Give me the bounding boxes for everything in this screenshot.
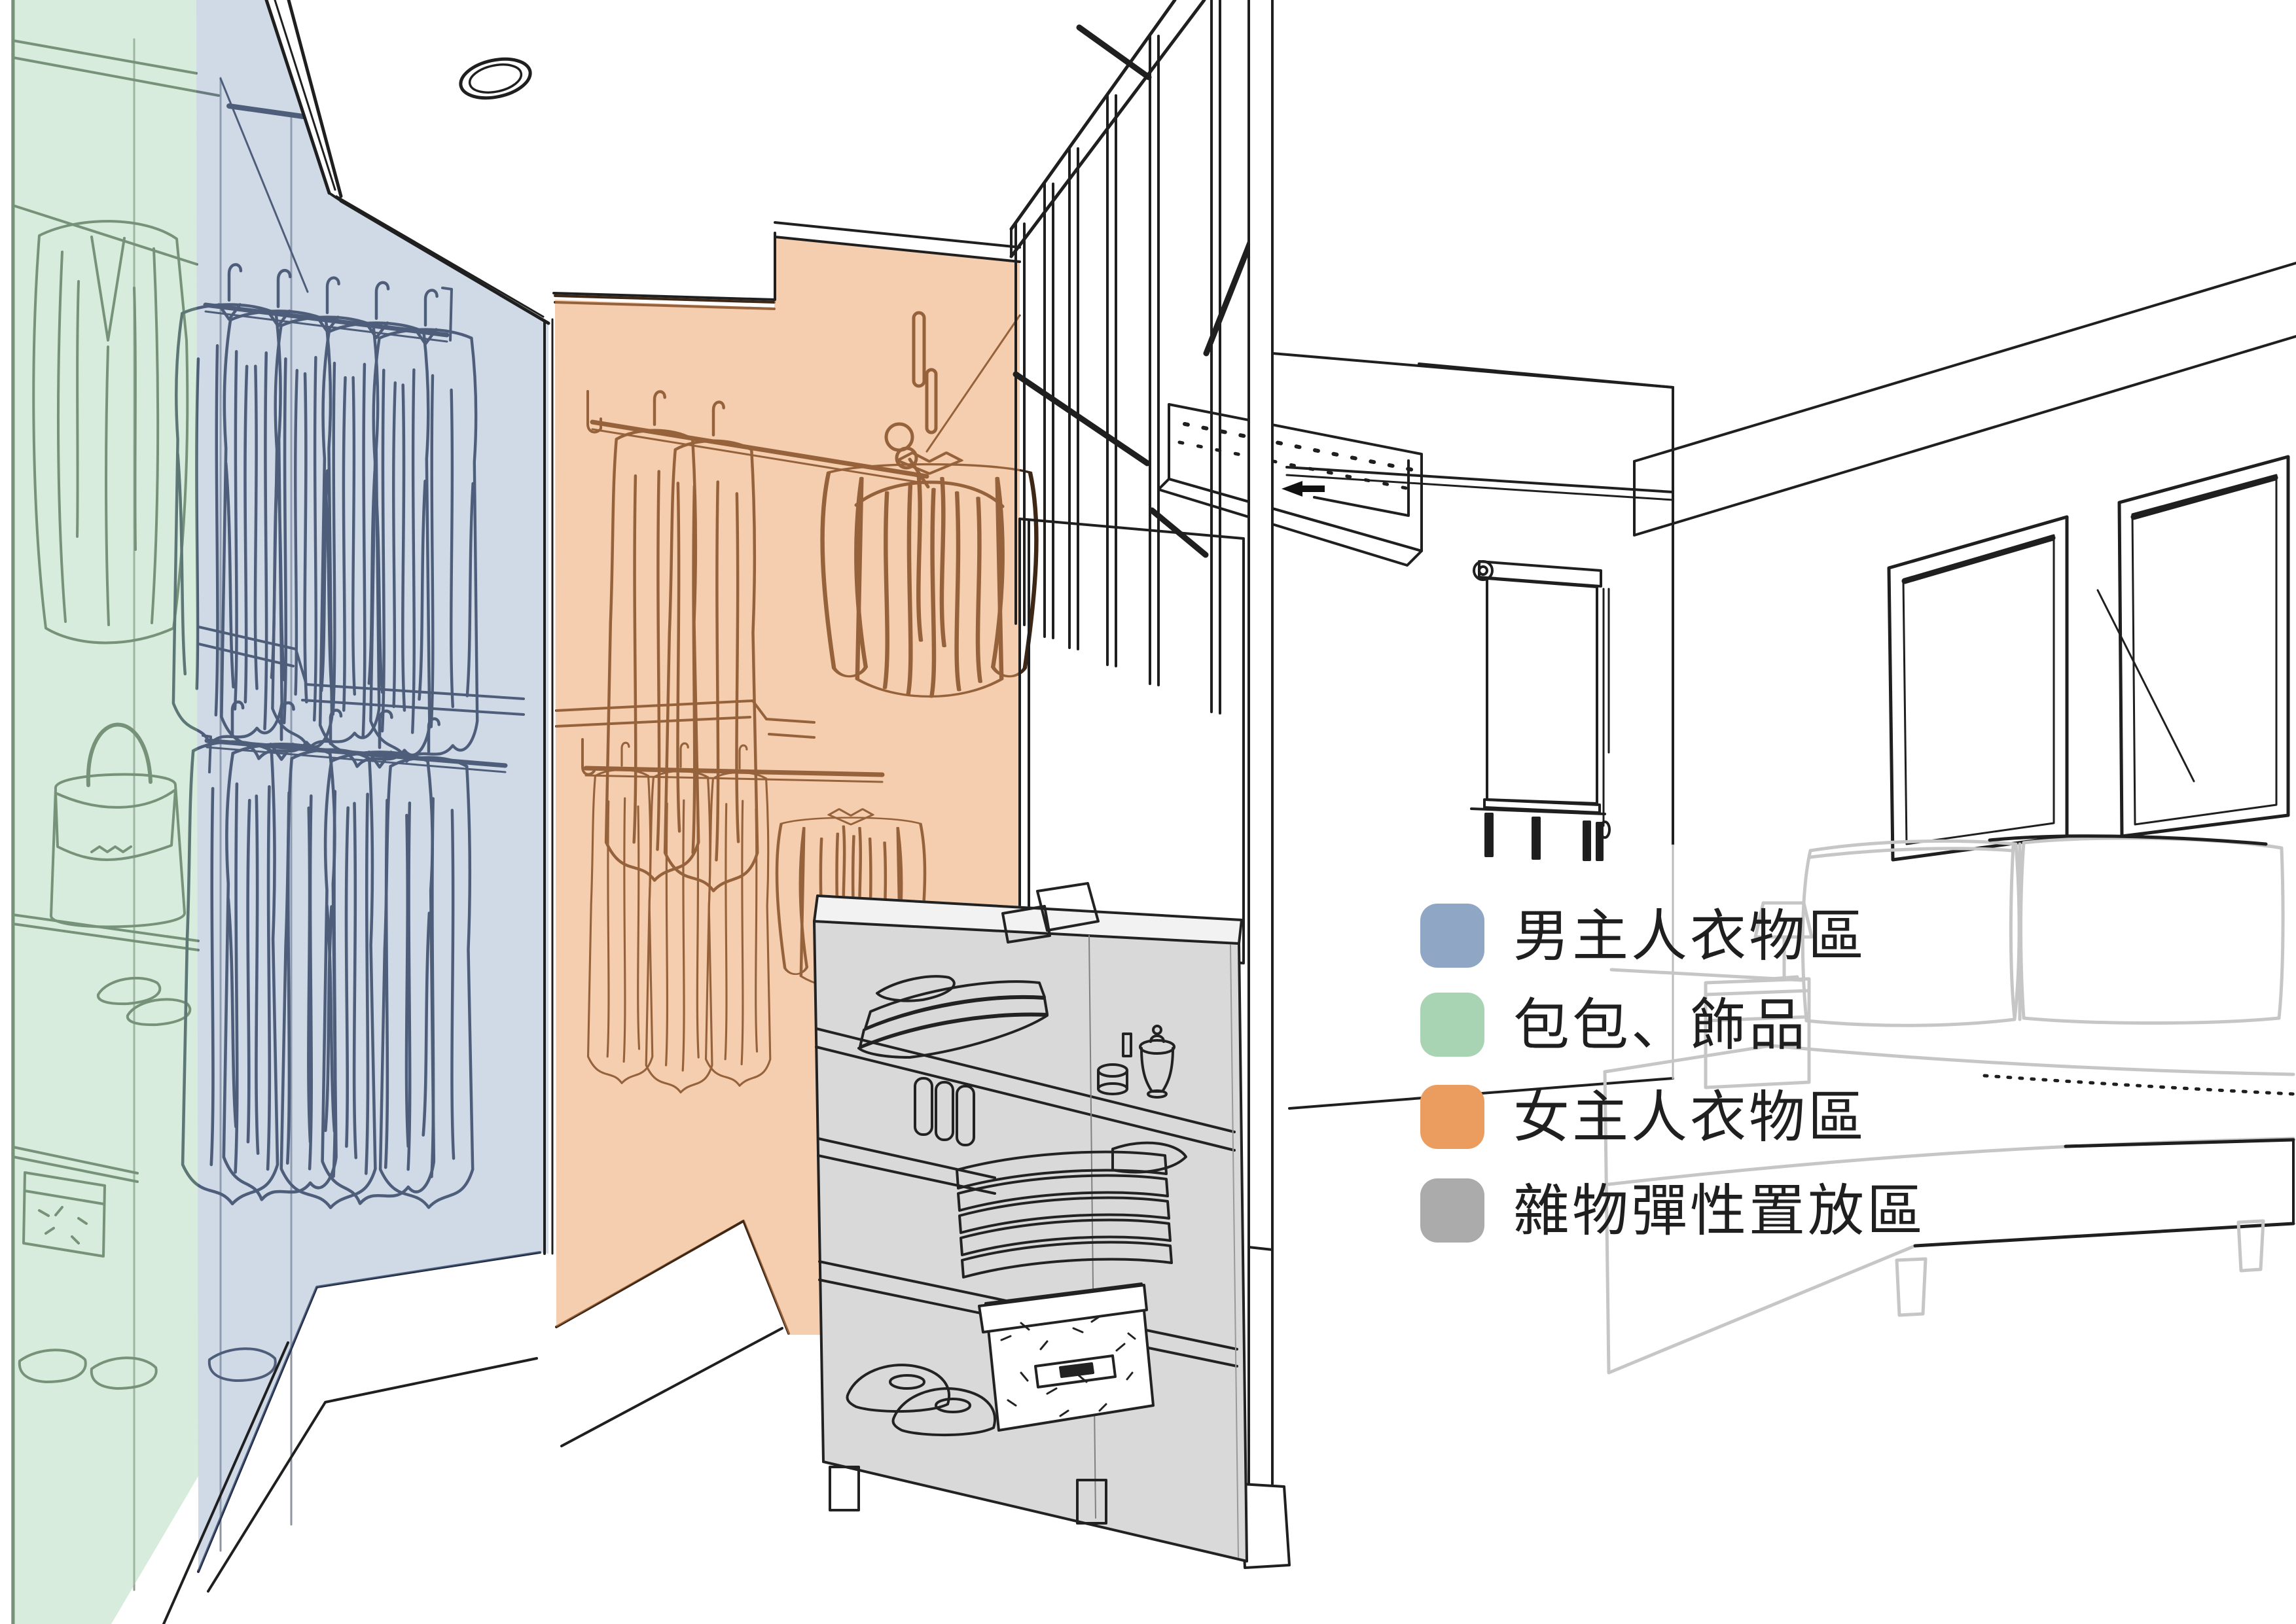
picture-frame-1: [1889, 517, 2067, 860]
ac-unit: [1158, 353, 1673, 565]
legend-swatch-bags-zone: [1420, 993, 1484, 1057]
legend-label-bags-zone: 包包、飾品: [1513, 994, 1808, 1057]
wardrobe-side-panel: [1020, 481, 1325, 963]
roller-blind-window: [1471, 561, 1609, 860]
ceiling-beam: [1634, 263, 2296, 535]
legend-label-misc-zone: 雜物彈性置放區: [1513, 1180, 1926, 1243]
bed-leg: [2238, 1221, 2263, 1271]
recessed-light-icon: [457, 53, 533, 103]
bed-leg: [1897, 1259, 1926, 1315]
zone-overlay-male-clothing: [196, 0, 548, 1572]
picture-frame-2: [2119, 457, 2288, 836]
legend-label-female-zone: 女主人衣物區: [1513, 1086, 1867, 1149]
pillow-right: [2021, 838, 2284, 1023]
interior-zoning-diagram: 男主人衣物區 包包、飾品 女主人衣物區 雜物彈性置放區: [0, 0, 2296, 1624]
legend-swatch-male-zone: [1420, 904, 1484, 968]
legend-swatch-misc-zone: [1420, 1178, 1484, 1243]
zone-overlay-bags-accessories: [12, 0, 198, 1624]
legend-swatch-female-zone: [1420, 1085, 1484, 1149]
support-pole: [1241, 0, 1289, 1568]
storage-box: [979, 1284, 1153, 1430]
storage-island: [814, 883, 1247, 1561]
slat-partition: [1011, 0, 1251, 713]
legend-label-male-zone: 男主人衣物區: [1513, 905, 1867, 968]
door-handle-icon: [1282, 481, 1325, 497]
glass-rail: [1287, 467, 1673, 500]
